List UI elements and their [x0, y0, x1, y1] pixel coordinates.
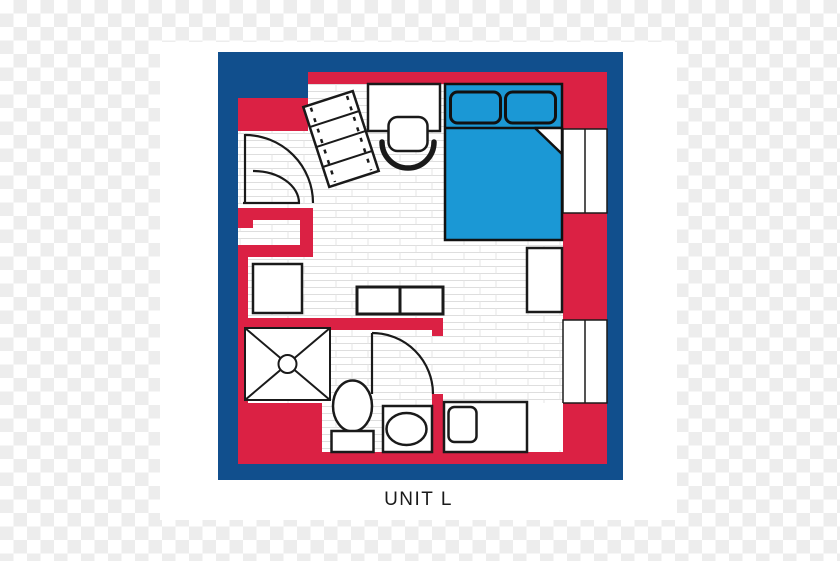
storage-boxes — [357, 287, 443, 314]
toilet — [332, 381, 374, 453]
shower — [245, 328, 330, 400]
bathroom-sink — [383, 406, 432, 452]
counter-appliance — [449, 407, 477, 442]
transparency-checkerboard: UNIT L — [0, 0, 840, 561]
shower-drain — [279, 355, 297, 373]
wardrobe — [253, 264, 302, 313]
pillow-right — [506, 92, 556, 123]
nightstand — [527, 248, 562, 312]
window-lower-right — [563, 320, 607, 403]
window-upper-right — [563, 129, 607, 213]
kitchen-counter — [444, 402, 563, 452]
floor-plan-canvas — [0, 0, 840, 561]
unit-label: UNIT L — [160, 489, 677, 511]
bed — [445, 84, 562, 240]
pillow-left — [451, 92, 501, 123]
